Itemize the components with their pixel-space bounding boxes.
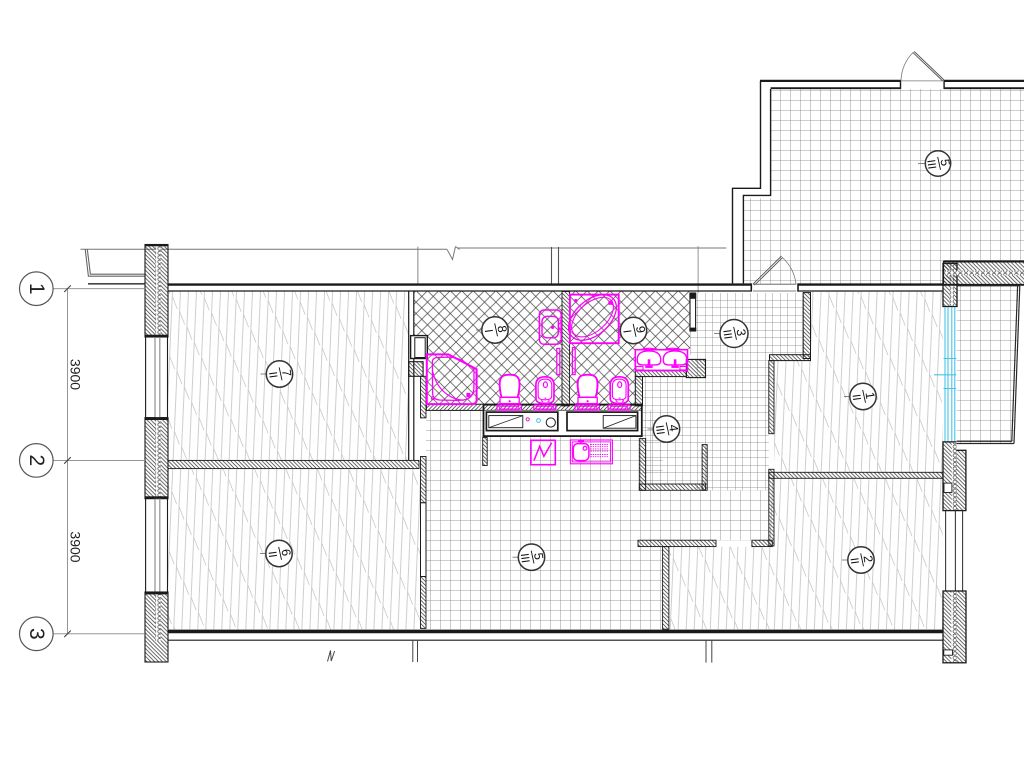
svg-text:3900: 3900 bbox=[68, 531, 84, 562]
svg-text:III: III bbox=[720, 329, 733, 340]
svg-text:III: III bbox=[653, 424, 666, 435]
svg-text:III: III bbox=[518, 553, 531, 564]
svg-text:2: 2 bbox=[25, 455, 48, 467]
svg-text:3: 3 bbox=[25, 628, 48, 640]
svg-text:1: 1 bbox=[25, 283, 48, 295]
svg-text:3900: 3900 bbox=[68, 359, 84, 390]
svg-text:III: III bbox=[924, 159, 937, 170]
